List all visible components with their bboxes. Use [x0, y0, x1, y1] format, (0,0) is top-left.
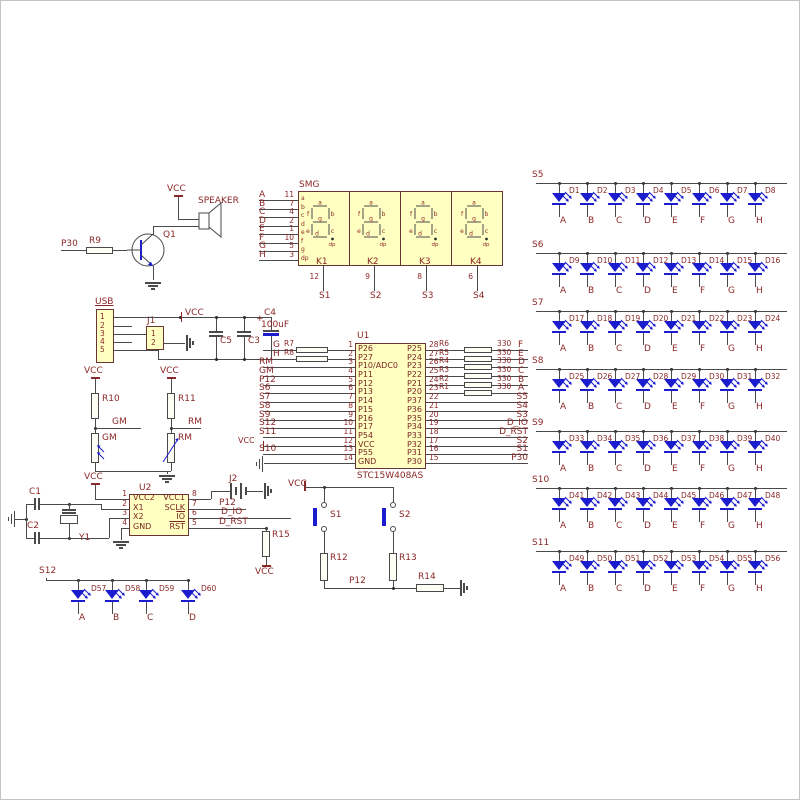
- capacitor-plate: [263, 330, 279, 332]
- net-label: S9: [532, 419, 543, 428]
- wire: [109, 518, 110, 538]
- ground-icon: [165, 481, 169, 483]
- resistor-r13: [389, 553, 397, 581]
- pin-number: 13: [337, 445, 353, 453]
- led-icon: [662, 441, 684, 457]
- pin-number: 12: [305, 273, 319, 281]
- wire: [40, 504, 69, 505]
- digit-separator: [400, 192, 401, 265]
- pin-number: 1: [151, 330, 156, 338]
- ground-icon: [259, 459, 261, 469]
- vcc-label: VCC: [255, 568, 274, 577]
- net-label: S11: [532, 539, 549, 548]
- wire: [324, 588, 416, 589]
- segment-name: g: [301, 247, 305, 253]
- net-label: B: [588, 585, 594, 594]
- capacitor-label: C3: [248, 337, 260, 346]
- pin-number: 6: [192, 509, 197, 517]
- resistor-r12: [320, 553, 328, 581]
- pin-name: P26: [358, 345, 373, 353]
- net-label: F: [700, 345, 705, 354]
- wire: [114, 326, 132, 327]
- resistor-label: R1: [439, 383, 449, 391]
- net-label: E: [672, 585, 678, 594]
- pin-number: 18: [429, 428, 439, 436]
- led-icon: [550, 498, 572, 514]
- led-icon: [634, 321, 656, 337]
- ground-icon: [113, 541, 129, 543]
- pin-name: P20: [385, 388, 422, 396]
- pin-name: GND: [358, 458, 376, 466]
- net-label: S1: [319, 292, 330, 301]
- led-icon: [550, 193, 572, 209]
- pin-name: P15: [358, 406, 373, 414]
- led-designator: D40: [765, 435, 780, 443]
- wire: [95, 484, 96, 499]
- net-label: B: [588, 465, 594, 474]
- led-icon: [137, 590, 159, 606]
- wire: [211, 491, 230, 492]
- variable-resistor-arrow-icon: [159, 437, 185, 465]
- net-label: E: [672, 403, 678, 412]
- vcc-bar: [181, 312, 183, 322]
- pin-number: 3: [115, 509, 127, 517]
- pin-name: P33: [385, 432, 422, 440]
- pin-number: 4: [115, 519, 127, 527]
- wire: [46, 578, 47, 581]
- net-label: G: [728, 585, 735, 594]
- net-label: A: [560, 465, 566, 474]
- led-icon: [746, 193, 768, 209]
- net-label: C: [616, 465, 622, 474]
- seven-segment-glyph: abcdefgdp: [458, 197, 492, 247]
- svg-text:c: c: [331, 228, 334, 235]
- wire: [26, 538, 34, 539]
- pin-name: P25: [385, 345, 422, 353]
- usb-title: USB: [95, 298, 113, 307]
- led-icon: [746, 561, 768, 577]
- digit-common-label: K1: [316, 258, 328, 267]
- ground-icon: [264, 483, 266, 499]
- pin-name: P11: [358, 371, 373, 379]
- net-label: D: [644, 465, 651, 474]
- led-icon: [746, 263, 768, 279]
- net-label: A: [560, 522, 566, 531]
- led-icon: [662, 263, 684, 279]
- pin-name: X1: [133, 504, 144, 512]
- pin-number: 10: [337, 419, 353, 427]
- digit-common-label: K2: [367, 258, 379, 267]
- net-label: S6: [532, 241, 543, 250]
- pin-name: P30: [385, 458, 422, 466]
- net-label: C: [616, 217, 622, 226]
- net-label: A: [560, 403, 566, 412]
- led-designator: D59: [159, 585, 174, 593]
- net-label: B: [113, 614, 119, 623]
- photoresistor-arrows-icon: [83, 437, 109, 465]
- pin-number: 11: [337, 428, 353, 436]
- svg-text:a: a: [369, 200, 373, 207]
- pin-number: 7: [337, 393, 353, 401]
- led-icon: [578, 441, 600, 457]
- wire: [69, 524, 70, 538]
- resistor-label: R14: [418, 573, 436, 582]
- schematic-canvas: SMG U1 STC15W408AS USB J1 U2 J2 S12 VCCS…: [0, 0, 800, 800]
- pin-name: P54: [358, 432, 373, 440]
- junction-dot: [215, 316, 218, 319]
- pin-number: 11: [278, 191, 294, 199]
- resistor-value: 330: [497, 340, 511, 348]
- wire: [536, 431, 787, 432]
- net-label: D_IO: [221, 508, 242, 517]
- net-label: C: [616, 403, 622, 412]
- pin-name: VCC1: [149, 494, 185, 502]
- s12-header: S12: [39, 567, 56, 576]
- led-icon: [690, 561, 712, 577]
- pin-number: 6: [459, 273, 473, 281]
- pin-name: P23: [385, 362, 422, 370]
- ground-icon: [159, 475, 175, 477]
- wire: [61, 250, 86, 251]
- wire: [26, 504, 34, 505]
- wire: [46, 580, 188, 581]
- net-label: P12: [349, 577, 366, 586]
- led-icon: [578, 379, 600, 395]
- net-label: B: [588, 345, 594, 354]
- wire: [264, 463, 355, 464]
- net-label: E: [672, 217, 678, 226]
- led-icon: [718, 263, 740, 279]
- led-designator: D8: [765, 187, 776, 195]
- resistor-label: R11: [178, 395, 196, 404]
- svg-text:b: b: [485, 211, 489, 218]
- wire: [323, 266, 324, 291]
- vcc-label: VCC: [84, 473, 103, 482]
- wire: [109, 518, 129, 519]
- wire: [164, 343, 185, 344]
- pin-number: 8: [192, 490, 197, 498]
- wire: [95, 499, 129, 500]
- wire: [40, 538, 69, 539]
- svg-text:c: c: [485, 228, 488, 235]
- led-icon: [578, 321, 600, 337]
- wire: [477, 266, 478, 291]
- led-designator: D60: [201, 585, 216, 593]
- seven-segment-glyph: abcdefgdp: [407, 197, 441, 247]
- wire: [158, 350, 159, 359]
- j1-designator: J1: [147, 317, 155, 326]
- net-label: S4: [473, 292, 484, 301]
- net-label: H: [756, 585, 763, 594]
- led-icon: [662, 321, 684, 337]
- led-icon: [662, 561, 684, 577]
- seven-segment-glyph: abcdefgdp: [304, 197, 338, 247]
- resistor-r10: [91, 393, 99, 419]
- pin-number: 1: [337, 341, 353, 349]
- pin-number: 14: [337, 454, 353, 462]
- led-icon: [690, 498, 712, 514]
- net-label: F: [700, 585, 705, 594]
- svg-text:dp: dp: [329, 242, 336, 248]
- wire: [114, 350, 158, 351]
- net-label: A: [560, 287, 566, 296]
- led-designator: D32: [765, 373, 780, 381]
- led-icon: [634, 561, 656, 577]
- led-icon: [718, 193, 740, 209]
- svg-text:g: g: [421, 216, 425, 223]
- led-icon: [662, 498, 684, 514]
- ground-icon: [186, 335, 188, 351]
- pin-number: 2: [151, 339, 156, 347]
- wire: [247, 491, 263, 492]
- net-label: C: [616, 345, 622, 354]
- net-label: H: [756, 345, 763, 354]
- pin-number: 22: [429, 393, 439, 401]
- net-label: A: [560, 345, 566, 354]
- net-label: G: [728, 465, 735, 474]
- svg-text:f: f: [410, 211, 413, 218]
- capacitor-label: C2: [27, 522, 39, 531]
- pin-name: X2: [133, 513, 144, 521]
- wire: [324, 531, 325, 553]
- net-label: P30: [456, 454, 528, 463]
- pin-name: P17: [358, 423, 373, 431]
- pin-number: 5: [192, 519, 197, 527]
- wire: [244, 336, 245, 359]
- wire: [189, 499, 211, 500]
- net-label: D: [644, 217, 651, 226]
- vcc-label: VCC: [167, 185, 186, 194]
- wire: [216, 336, 217, 359]
- net-label: G: [728, 345, 735, 354]
- pin-number: 19: [429, 419, 439, 427]
- wire: [121, 528, 122, 540]
- vcc-label: VCC: [238, 437, 255, 445]
- led-icon: [746, 321, 768, 337]
- battery-plate: [230, 483, 232, 499]
- led-designator: D16: [765, 257, 780, 265]
- resistor-label: R4: [439, 357, 449, 365]
- junction-dot: [243, 316, 246, 319]
- wire: [536, 311, 787, 312]
- net-label: F: [700, 522, 705, 531]
- wire: [393, 531, 394, 553]
- segment-name: dp: [301, 256, 309, 262]
- wire: [211, 491, 212, 499]
- resistor-r5: [464, 356, 492, 362]
- wire: [426, 266, 427, 291]
- resistor-label: R12: [330, 554, 348, 563]
- speaker-label: SPEAKER: [198, 197, 239, 206]
- capacitor-value: 100uF: [261, 321, 289, 330]
- net-label: D: [189, 614, 196, 623]
- net-label: S3: [422, 292, 433, 301]
- net-label: B: [588, 403, 594, 412]
- svg-text:dp: dp: [432, 242, 439, 248]
- led-icon: [606, 441, 628, 457]
- net-label: G: [728, 217, 735, 226]
- wire: [121, 528, 129, 529]
- led-icon: [718, 561, 740, 577]
- svg-text:g: g: [369, 216, 373, 223]
- led-icon: [606, 263, 628, 279]
- wire: [244, 317, 245, 331]
- led-icon: [634, 441, 656, 457]
- net-label: A: [560, 217, 566, 226]
- resistor-r15: [262, 531, 270, 557]
- svg-text:d: d: [366, 231, 370, 238]
- svg-text:g: g: [318, 216, 322, 223]
- resistor-label: R9: [89, 237, 101, 246]
- svg-text:d: d: [418, 231, 422, 238]
- led-icon: [578, 263, 600, 279]
- pin-name: P13: [358, 388, 373, 396]
- led-designator: D48: [765, 492, 780, 500]
- resistor-label: R10: [102, 395, 120, 404]
- svg-text:d: d: [469, 231, 473, 238]
- wire: [305, 487, 393, 488]
- pin-number: 5: [278, 242, 294, 250]
- junction-dot: [392, 587, 395, 590]
- led-icon: [718, 498, 740, 514]
- wire: [271, 336, 272, 359]
- led-icon: [550, 263, 572, 279]
- vcc-label: VCC: [160, 367, 179, 376]
- pin-number: 3: [337, 358, 353, 366]
- ground-icon: [460, 580, 462, 596]
- pin-number: 26: [429, 358, 439, 366]
- pin-number: 1: [100, 313, 105, 321]
- net-label: S5: [532, 171, 543, 180]
- wire: [95, 378, 96, 393]
- vcc-label: VCC: [84, 367, 103, 376]
- wire: [69, 504, 101, 505]
- battery-plate: [235, 487, 238, 495]
- ground-icon: [116, 544, 126, 546]
- led-icon: [746, 441, 768, 457]
- ground-icon: [8, 517, 10, 521]
- capacitor-plate: [209, 331, 223, 333]
- svg-text:dp: dp: [380, 242, 387, 248]
- pin-name: P34: [385, 423, 422, 431]
- led-icon: [179, 590, 201, 606]
- net-label: D: [644, 522, 651, 531]
- led-icon: [550, 441, 572, 457]
- led-icon: [103, 590, 125, 606]
- svg-text:dp: dp: [483, 242, 490, 248]
- pin-number: 16: [429, 445, 439, 453]
- crystal-y1: [60, 515, 78, 524]
- pin-name: P55: [358, 449, 373, 457]
- pin-name: SCLK: [149, 504, 185, 512]
- wire: [444, 588, 460, 589]
- led-icon: [634, 498, 656, 514]
- wire: [95, 471, 171, 472]
- wire: [69, 538, 109, 539]
- wire: [426, 463, 528, 464]
- resistor-r2: [464, 382, 492, 388]
- led-icon: [718, 321, 740, 337]
- wire: [113, 250, 127, 251]
- led-icon: [606, 498, 628, 514]
- led-icon: [690, 193, 712, 209]
- net-label: S7: [532, 299, 543, 308]
- resistor-value: 330: [497, 366, 511, 374]
- net-label: S2: [370, 292, 381, 301]
- ground-icon: [466, 586, 468, 590]
- net-label: S10: [532, 476, 549, 485]
- ground-icon: [192, 341, 194, 345]
- svg-text:e: e: [460, 228, 464, 235]
- ground-icon: [162, 478, 172, 480]
- svg-text:a: a: [318, 200, 322, 207]
- net-label: RM: [188, 418, 202, 427]
- ground-icon: [463, 583, 465, 593]
- led-icon: [578, 193, 600, 209]
- wire: [259, 260, 298, 261]
- digit-common-label: K3: [419, 258, 431, 267]
- pin-number: 3: [278, 251, 294, 259]
- net-label: G: [728, 522, 735, 531]
- led-icon: [746, 498, 768, 514]
- pin-name: RST: [149, 523, 185, 531]
- pin-number: 8: [337, 402, 353, 410]
- net-label: B: [588, 522, 594, 531]
- resistor-label: R7: [284, 340, 294, 348]
- resistor-label: R6: [439, 340, 449, 348]
- resistor-r11: [167, 393, 175, 419]
- resistor-r8: [296, 356, 328, 362]
- led-icon: [550, 561, 572, 577]
- wire: [95, 428, 141, 429]
- svg-text:e: e: [409, 228, 413, 235]
- net-label: H: [756, 403, 763, 412]
- wire: [153, 226, 199, 227]
- svg-text:e: e: [306, 228, 310, 235]
- ground-icon: [145, 282, 161, 284]
- resistor-label: R8: [284, 349, 294, 357]
- net-label: D: [644, 287, 651, 296]
- svg-text:c: c: [434, 228, 437, 235]
- resistor-r6: [464, 347, 492, 353]
- wire: [171, 428, 201, 429]
- led-icon: [606, 379, 628, 395]
- pin-number: 21: [429, 402, 439, 410]
- pin-number: 25: [429, 367, 439, 375]
- resistor-r14: [416, 584, 444, 592]
- svg-text:b: b: [331, 211, 335, 218]
- wire: [324, 581, 325, 588]
- ground-icon: [262, 456, 264, 472]
- pin-number: 6: [337, 384, 353, 392]
- svg-text:e: e: [357, 228, 361, 235]
- led-designator: D56: [765, 555, 780, 563]
- net-label: H: [756, 217, 763, 226]
- led-icon: [690, 263, 712, 279]
- svg-text:d: d: [315, 231, 319, 238]
- net-label: D: [644, 345, 651, 354]
- pin-name: P31: [385, 449, 422, 457]
- net-label: P30: [61, 240, 78, 249]
- led-icon: [606, 561, 628, 577]
- resistor-label: R15: [272, 531, 290, 540]
- pin-number: 8: [408, 273, 422, 281]
- wire: [167, 471, 168, 474]
- usb-connector: [96, 309, 114, 363]
- svg-text:f: f: [307, 211, 310, 218]
- net-label: F: [700, 403, 705, 412]
- net-label: B: [588, 287, 594, 296]
